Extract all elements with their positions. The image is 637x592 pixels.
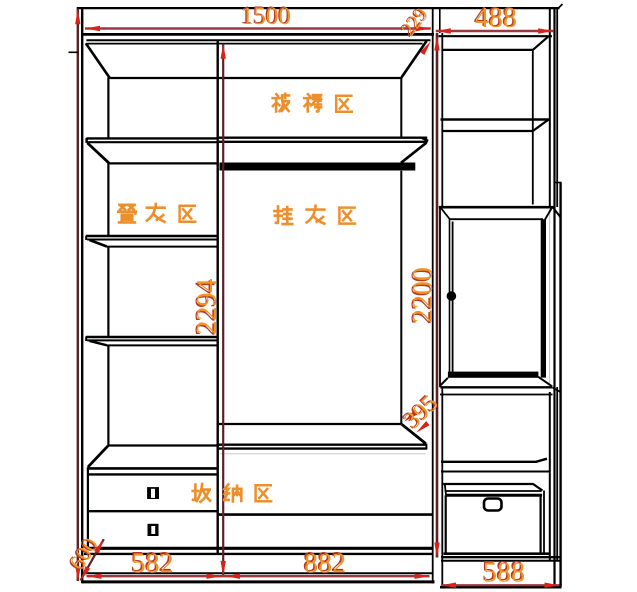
- svg-text:582: 582: [132, 549, 174, 580]
- svg-text:1500: 1500: [241, 3, 291, 30]
- svg-text:588: 588: [483, 558, 525, 589]
- svg-text:2200: 2200: [408, 267, 439, 323]
- svg-text:600: 600: [64, 533, 103, 574]
- svg-text:2294: 2294: [192, 279, 223, 335]
- svg-text:488: 488: [475, 3, 517, 34]
- svg-text:882: 882: [304, 549, 346, 580]
